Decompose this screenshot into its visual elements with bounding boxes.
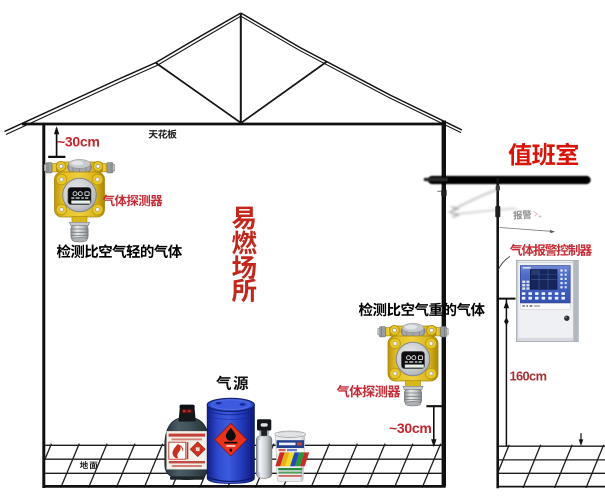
svg-text:160cm: 160cm — [510, 368, 547, 383]
svg-text:~30cm: ~30cm — [57, 134, 99, 150]
svg-text:~30cm: ~30cm — [389, 420, 431, 436]
